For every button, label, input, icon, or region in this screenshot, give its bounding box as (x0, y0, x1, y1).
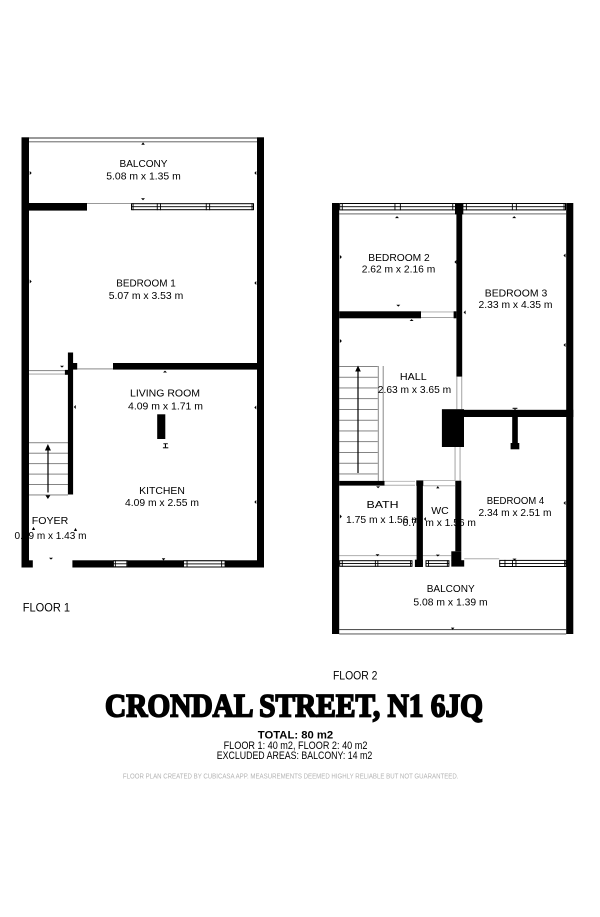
svg-text:2.34 m x 2.51 m: 2.34 m x 2.51 m (479, 507, 552, 519)
svg-text:BEDROOM 2: BEDROOM 2 (368, 252, 430, 264)
svg-text:0.74 m x 1.56 m: 0.74 m x 1.56 m (403, 517, 477, 529)
svg-text:5.07 m x 3.53 m: 5.07 m x 3.53 m (109, 290, 184, 302)
svg-text:KITCHEN: KITCHEN (139, 485, 185, 497)
svg-text:BEDROOM 4: BEDROOM 4 (487, 495, 545, 507)
svg-text:BALCONY: BALCONY (120, 158, 168, 170)
svg-text:BEDROOM 3: BEDROOM 3 (485, 288, 548, 300)
svg-text:2.62 m x 2.16 m: 2.62 m x 2.16 m (362, 264, 436, 276)
svg-text:WC: WC (431, 505, 449, 517)
svg-text:2.33 m x 4.35 m: 2.33 m x 4.35 m (479, 299, 553, 311)
svg-text:HALL: HALL (400, 371, 427, 383)
svg-text:4.09 m x 2.55 m: 4.09 m x 2.55 m (125, 497, 199, 509)
svg-text:2.63 m x 3.65 m: 2.63 m x 3.65 m (378, 384, 452, 396)
svg-text:EXCLUDED AREAS: BALCONY: 14 m2: EXCLUDED AREAS: BALCONY: 14 m2 (217, 750, 373, 762)
svg-text:5.08 m x 1.35 m: 5.08 m x 1.35 m (106, 171, 181, 183)
svg-text:FLOOR PLAN CREATED BY CUBICASA: FLOOR PLAN CREATED BY CUBICASA APP. MEAS… (123, 773, 459, 780)
svg-text:FOYER: FOYER (32, 515, 69, 527)
svg-text:FLOOR 1: FLOOR 1 (23, 601, 71, 615)
svg-text:BEDROOM 1: BEDROOM 1 (116, 278, 176, 290)
svg-text:5.08 m x 1.39 m: 5.08 m x 1.39 m (413, 596, 487, 608)
svg-text:BALCONY: BALCONY (427, 583, 475, 595)
svg-text:BATH: BATH (367, 499, 399, 511)
svg-text:FLOOR 2: FLOOR 2 (333, 669, 378, 683)
svg-text:4.09 m x 1.71 m: 4.09 m x 1.71 m (128, 401, 203, 413)
svg-text:CRONDAL STREET, N1 6JQ: CRONDAL STREET, N1 6JQ (105, 689, 483, 725)
svg-text:LIVING ROOM: LIVING ROOM (130, 388, 200, 400)
